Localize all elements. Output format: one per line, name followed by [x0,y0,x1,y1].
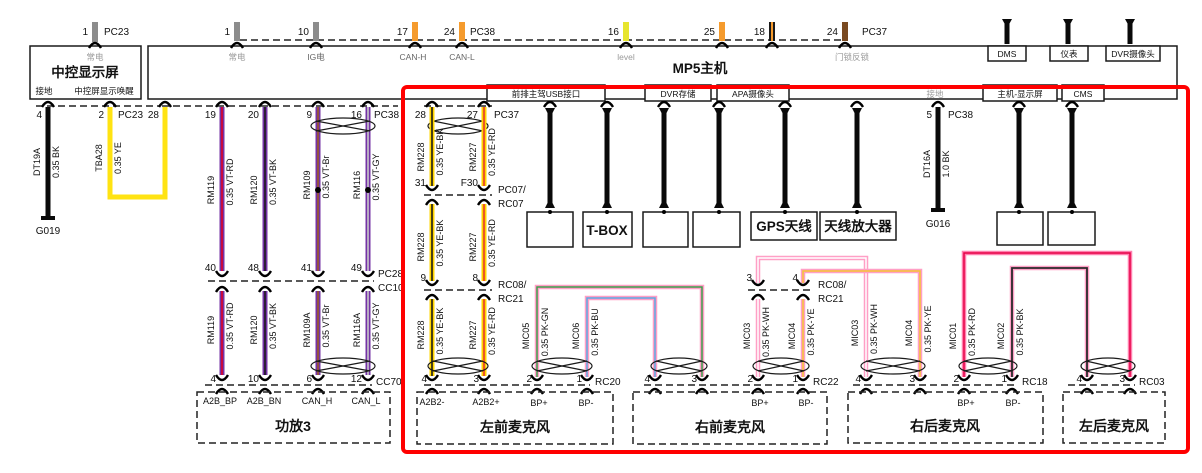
conn-rc07: RC07 [498,199,524,210]
conn-cc10: CC10 [378,283,404,294]
rr-pin1: 1 [1001,374,1007,385]
mp5-title: MP5主机 [673,60,728,76]
pc28-cc10-arcs [216,271,374,292]
rm109a-name: RM109A [302,312,312,347]
pin-stub [234,22,240,41]
dt16a-spec: 1.0 BK [941,150,951,177]
rm228-spec2: 0.35 YE-BK [435,220,445,267]
conn-rc22: RC22 [813,377,839,388]
mp5-pin17: 17 [397,27,409,38]
wire-mic05 [537,287,702,377]
rf-pin3: 3 [691,374,697,385]
pin-f30: F30 [461,178,479,189]
host-display-label: 主机-显示屏 [997,89,1043,99]
conn-pc07: PC07/ [498,185,526,196]
lf-pin3: 3 [473,374,479,385]
pin-41: 41 [301,263,313,274]
rm228-name2: RM228 [416,232,426,261]
rm120b-spec: 0.35 VT-BK [268,303,278,349]
mic04b-name: MIC04 [904,320,914,347]
mic03-spec: 0.35 PK-WH [761,307,771,357]
conn-rc20: RC20 [595,377,621,388]
purple-pin20: 20 [248,110,260,121]
rm116-spec: 0.35 VT-GY [371,153,381,200]
lf-pin1: 1 [576,374,582,385]
pin-49: 49 [351,263,363,274]
rf-pin2: 2 [747,374,753,385]
screen-wake-label: 中控屏显示唤醒 [74,86,134,96]
rm119b-name: RM119 [206,316,216,344]
rf-pin1: 1 [792,374,798,385]
lf-a2b-minus: A2B2- [419,397,444,407]
lf-bp-minus: BP- [578,398,593,408]
mic04b-spec: 0.35 PK-YE [923,305,933,352]
dms-label: DMS [998,49,1017,59]
rf-bp-minus: BP- [798,398,813,408]
pin-6: 6 [306,374,312,385]
pin-28: 28 [415,110,427,121]
lf-pin4: 4 [421,374,427,385]
mic06-name: MIC06 [571,323,581,350]
rm119-spec: 0.35 VT-RD [225,158,235,206]
rm109-spec: 0.35 VT-Br [321,155,331,198]
wiring-diagram-page: 常电 中控显示屏 接地 中控屏显示唤醒 1 PC23 MP5主机 1 常电 10… [0,0,1202,473]
pin-stub [623,22,629,41]
conn-pc37: PC37 [494,110,519,121]
mp5-pin1: 1 [224,27,230,38]
rm120-spec: 0.35 VT-BK [268,159,278,205]
gps-antenna-label: GPS天线 [756,218,812,234]
mic04-spec: 0.35 PK-YE [806,308,816,355]
antenna-amp-label: 天线放大器 [824,218,892,234]
mic-twists [532,358,1135,374]
rm227-name2: RM227 [468,232,478,261]
conn-rc21b: RC21 [818,294,844,305]
mic03-name: MIC03 [742,323,752,350]
rm116a-name: RM116A [352,313,362,347]
mp5-top-device-wires [1002,19,1135,44]
apa-camera-label: APA摄像头 [732,89,774,99]
mp5-pin25: 25 [704,27,716,38]
mp5-pin18: 18 [754,27,766,38]
cluster-label: 仪表 [1060,49,1078,59]
rm119-name: RM119 [206,176,216,204]
rf-bp-plus: BP+ [751,398,768,408]
mic03b-name: MIC03 [850,320,860,347]
conn-rc08: RC08/ [498,280,527,291]
rr-pin2: 2 [953,374,959,385]
conn-rc08b: RC08/ [818,280,847,291]
mic03b-spec: 0.35 PK-WH [869,304,879,354]
rm116-name: RM116 [352,171,362,199]
rm227-spec3: 0.35 YE-RD [487,307,497,355]
lr-pin4: 4 [1076,374,1082,385]
screen-top-conn: PC23 [104,27,129,38]
screen-pin-wake: 2 [98,110,104,121]
purple-conn-top: PC38 [374,110,399,121]
rm227-spec: 0.35 YE-RD [487,128,497,176]
pin-4: 4 [792,273,798,284]
tbox-label: T-BOX [586,223,627,238]
mp5-pin24a: 24 [444,27,456,38]
purple-wires-seg1 [222,107,371,271]
rm227-spec2: 0.35 YE-RD [487,219,497,267]
rm227-name3: RM227 [468,320,478,349]
dt16a-name: DT16A [922,150,932,178]
screen-power-label: 常电 [86,52,104,62]
pin-31: 31 [415,178,427,189]
mp5-pin16: 16 [608,27,620,38]
mp5-pin24a-label: CAN-L [449,52,475,62]
rm109a-spec: 0.35 VT-Br [321,304,331,347]
rm109-name: RM109 [302,170,312,199]
g016-label: G016 [926,219,951,230]
mp5-pin24a-conn: PC38 [470,27,495,38]
dt19a-spec: 0.35 BK [51,146,61,178]
conn-rc03: RC03 [1139,377,1165,388]
dt19a-name: DT19A [32,148,42,176]
device-box-4 [997,212,1043,245]
mic05-spec: 0.35 PK-GN [540,308,550,357]
pin-8: 8 [472,273,478,284]
rm228-spec: 0.35 YE-BK [435,129,445,176]
lr-pin3: 3 [1119,374,1125,385]
rm120b-name: RM120 [249,315,259,344]
lf-a2b-plus: A2B2+ [472,397,499,407]
rm119b-spec: 0.35 VT-RD [225,302,235,350]
screen-top-pin-number: 1 [82,27,88,38]
mic-lr-title: 左后麦克风 [1078,418,1149,434]
mp5-pin10-label: IG电 [307,52,325,62]
purple-pin19: 19 [205,110,217,121]
pin-12: 12 [351,374,363,385]
mp5-pin10: 10 [298,27,310,38]
mp5-pin16-label: level [617,52,635,62]
conn-pc28: PC28 [378,269,403,280]
rr-pin3: 3 [909,374,915,385]
device-box-1 [527,212,573,247]
pin-5: 5 [926,110,932,121]
screen-pin-gnd: 4 [36,110,42,121]
conn-rc18: RC18 [1022,377,1048,388]
mp5-gnd-label: 接地 [926,89,944,99]
lf-bp-plus: BP+ [530,398,547,408]
mic02-spec: 0.35 PK-BK [1015,308,1025,355]
rf-pin4: 4 [644,374,650,385]
cms-label: CMS [1074,89,1093,99]
usb-port-label: 前排主驾USB接口 [512,89,580,99]
device-box-5 [1048,212,1095,245]
mic04-name: MIC04 [787,323,797,350]
pin-stub [842,22,848,41]
pin-stub-stripe [771,22,773,41]
dvr-storage-label: DVR存储 [661,89,696,99]
mp5-pin24b-label: 门锁反锁 [835,52,870,62]
pin-9: 9 [420,273,426,284]
amp-can-h: CAN_H [302,396,333,406]
amplifier-title: 功放3 [275,418,311,434]
pin-48: 48 [248,263,260,274]
rm228-spec3: 0.35 YE-BK [435,308,445,355]
g019-label: G019 [36,226,61,237]
wire-mic05-core [537,287,702,377]
mp5-pin1-label: 常电 [228,52,246,62]
mic05-name: MIC05 [521,323,531,350]
lf-pin2: 2 [526,374,532,385]
mic06-spec: 0.35 PK-BU [590,308,600,356]
device-wires [545,108,1077,208]
rm116a-spec: 0.35 VT-GY [371,302,381,349]
mp5-pin24b-conn: PC37 [862,27,887,38]
rr-bp-plus: BP+ [957,398,974,408]
amp-a2b-bp: A2B_BP [203,396,237,406]
mic-rr-title: 右后麦克风 [909,418,980,434]
mic-lf-title: 左前麦克风 [479,419,550,435]
mp5-pin24b: 24 [827,27,839,38]
tba28-spec: 0.35 YE [113,142,123,174]
pin-10: 10 [248,374,260,385]
conn-rc21: RC21 [498,294,524,305]
rr-bp-minus: BP- [1005,398,1020,408]
pin-40: 40 [205,263,217,274]
rm228-name3: RM228 [416,320,426,349]
pin-stub [313,22,319,41]
pin-stub [719,22,725,41]
rr-pin4: 4 [855,374,861,385]
mic-rf-title: 右前麦克风 [694,419,765,435]
rm228-name: RM228 [416,142,426,171]
pin-stub [412,22,418,41]
pin-4: 4 [210,374,216,385]
screen-top-pin-stub [92,22,98,42]
wake-pin-right: 28 [148,110,160,121]
rm227-name: RM227 [468,142,478,171]
mic01-name: MIC01 [948,323,958,350]
conn-pc38-right: PC38 [948,110,973,121]
mic02-name: MIC02 [996,323,1006,350]
pin-stub [459,22,465,41]
device-box-3 [693,212,740,247]
mp5-pin17-label: CAN-H [400,52,427,62]
amp-a2b-bn: A2B_BN [247,396,282,406]
wiring-diagram: 常电 中控显示屏 接地 中控屏显示唤醒 1 PC23 MP5主机 1 常电 10… [0,0,1202,473]
screen-title: 中控显示屏 [51,64,119,80]
rm120-name: RM120 [249,175,259,204]
dvr-camera-label: DVR摄像头 [1111,49,1155,59]
tba28-name: TBA28 [94,144,104,172]
screen-gnd-label: 接地 [35,86,53,96]
device-box-2 [643,212,688,247]
amp-can-l: CAN_L [351,396,380,406]
purple-wires-seg2 [222,291,368,375]
screen-bottom-conn: PC23 [118,110,143,121]
mic01-spec: 0.35 PK-RD [967,307,977,356]
purple-pin9: 9 [306,110,312,121]
conn-cc70: CC70 [376,377,402,388]
pin-3: 3 [746,273,752,284]
